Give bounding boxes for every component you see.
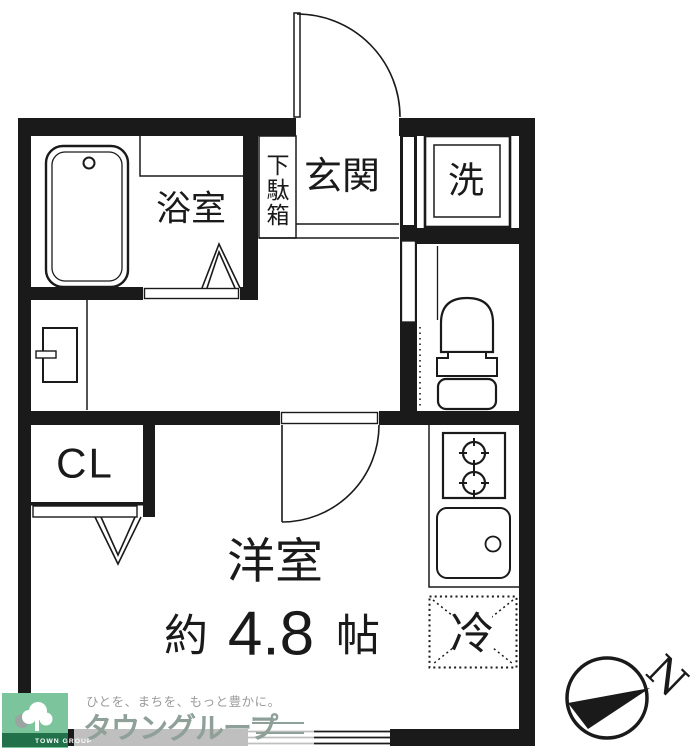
- shoe-cabinet-label-2: 駄: [267, 177, 290, 203]
- room-size-value: 4.8: [228, 600, 314, 669]
- watermark-tagline: ひとを、まちを、もっと豊かに。: [86, 695, 281, 709]
- washer-label: 洗: [448, 160, 484, 201]
- toilet-door-panel: [402, 241, 416, 322]
- toilet-bowl: [441, 298, 493, 352]
- toilet: [437, 298, 497, 409]
- room-door-slab: [282, 413, 378, 424]
- water-heater-handle: [36, 351, 56, 358]
- main-room-label: 洋室: [227, 536, 323, 589]
- floor-plan-page: 浴室 下 駄 箱 玄関 洗 CL 洋室 約 4.8 帖 冷 N TOWN GRO…: [0, 0, 700, 755]
- water-heater: [36, 328, 77, 382]
- shoe-cabinet-label-3: 箱: [267, 202, 290, 228]
- bathroom-counter-line: [140, 136, 243, 176]
- bath-door-slab: [145, 289, 239, 299]
- wall-closet-stub: [143, 425, 155, 517]
- closet-label: CL: [56, 440, 114, 487]
- wall-bathroom-right: [243, 136, 258, 300]
- kitchen-sink: [437, 508, 510, 578]
- floor-plan: 浴室 下 駄 箱 玄関 洗 CL 洋室 約 4.8 帖 冷 N TOWN GRO…: [0, 0, 700, 755]
- room-door-arc: [282, 425, 379, 522]
- shoe-cabinet-label-1: 下: [267, 152, 290, 178]
- closet-bottom-line: [31, 502, 143, 506]
- fridge-label: 冷: [450, 610, 494, 659]
- room-size-unit: 帖: [336, 612, 380, 661]
- room-size-prefix: 約: [164, 612, 208, 661]
- toilet-tank: [438, 379, 496, 409]
- closet-folding-door-inner: [101, 517, 135, 555]
- compass: N: [567, 646, 697, 738]
- entrance-door-leaf: [294, 13, 300, 117]
- kitchen-fixtures: [437, 433, 510, 578]
- entrance-door-arc: [297, 14, 400, 117]
- watermark-brand: タウングループ: [83, 712, 279, 745]
- brand-watermark: TOWN GROUP ひとを、まちを、もっと豊かに。 タウングループ: [2, 693, 314, 748]
- toilet-seat: [437, 352, 497, 376]
- wall-right: [519, 118, 535, 746]
- bathroom-fixtures: [46, 146, 128, 287]
- closet-door-slab: [33, 506, 137, 517]
- bath-folding-door-outer: [202, 244, 240, 288]
- wall-hall-bottom: [31, 411, 519, 425]
- wall-left: [18, 118, 31, 746]
- burner-top-ticks: [459, 438, 489, 468]
- entrance-label: 玄関: [304, 156, 380, 198]
- wall-washer-toilet: [417, 228, 519, 244]
- bathroom-label: 浴室: [156, 190, 226, 229]
- burner-bottom-ticks: [459, 468, 489, 498]
- wall-top-right: [399, 118, 535, 136]
- partition-strip: [403, 137, 414, 225]
- wall-top-left: [18, 118, 296, 136]
